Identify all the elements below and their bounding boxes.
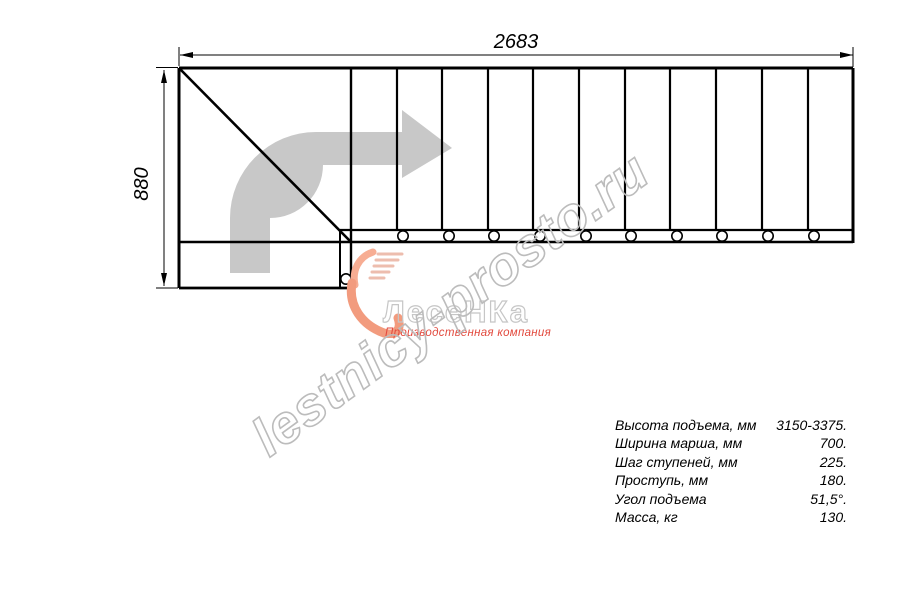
blueprint-canvas: 2683 880 ЛесеНКа Производственная компан… [0,0,900,600]
spec-value: 3150-3375. [776,416,847,434]
spec-value: 700. [820,434,847,452]
spec-table: Высота подъема, мм 3150-3375. Ширина мар… [615,416,847,526]
spec-value: 225. [820,453,847,471]
dim-arrow-right-icon [840,52,853,58]
dimension-height: 880 [131,68,178,289]
spec-value: 130. [820,508,847,526]
step-lines [397,68,808,230]
spec-row-flight-width: Ширина марша, мм 700. [615,434,847,452]
dimension-width: 2683 [179,31,853,67]
spec-label: Проступь, мм [615,471,708,489]
logo-name: ЛесеНКа [383,294,529,330]
spec-row-height: Высота подъема, мм 3150-3375. [615,416,847,434]
dim-arrow-left-icon [180,52,193,58]
spec-label: Шаг ступеней, мм [615,453,738,471]
spec-row-step-pitch: Шаг ступеней, мм 225. [615,453,847,471]
logo-tagline: Производственная компания [385,327,551,339]
spec-label: Угол подъема [615,490,707,508]
dim-arrow-down-icon [161,273,167,286]
spec-value: 180. [820,471,847,489]
spec-row-tread: Проступь, мм 180. [615,471,847,489]
dim-width-value: 2683 [493,31,539,53]
spec-value: 51,5°. [810,490,847,508]
spec-label: Масса, кг [615,508,678,526]
spec-row-mass: Масса, кг 130. [615,508,847,526]
dim-arrow-up-icon [161,70,167,83]
company-logo: ЛесеНКа Производственная компания [346,246,576,342]
spec-label: Ширина марша, мм [615,434,742,452]
spec-row-angle: Угол подъема 51,5°. [615,490,847,508]
spec-label: Высота подъема, мм [615,416,757,434]
dim-height-value: 880 [131,167,153,200]
